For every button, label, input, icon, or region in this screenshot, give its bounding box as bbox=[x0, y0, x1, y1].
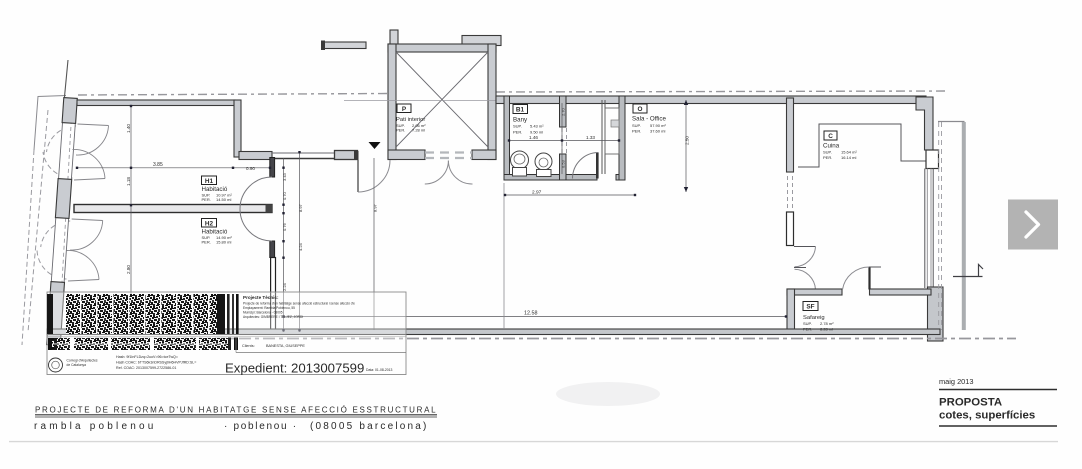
svg-text:H1: H1 bbox=[205, 178, 214, 185]
svg-text:SUP.: SUP. bbox=[803, 321, 812, 326]
svg-text:15.64 m²: 15.64 m² bbox=[841, 150, 857, 155]
svg-text:8.97: 8.97 bbox=[298, 203, 303, 212]
svg-text:2.78 m²: 2.78 m² bbox=[820, 321, 834, 326]
svg-text:maig 2013: maig 2013 bbox=[939, 377, 974, 386]
svg-text:SUP.: SUP. bbox=[513, 124, 522, 129]
svg-text:3.43: 3.43 bbox=[282, 172, 287, 181]
svg-text:37.60 ml: 37.60 ml bbox=[650, 129, 665, 134]
svg-text:Ref. COAC: 2013007599-2722586-: Ref. COAC: 2013007599-2722586-01 bbox=[116, 366, 176, 370]
svg-text:P: P bbox=[402, 106, 407, 113]
svg-text:SUP.: SUP. bbox=[632, 123, 641, 128]
svg-text:Data: 01-08-2013: Data: 01-08-2013 bbox=[366, 368, 393, 372]
svg-text:8.97: 8.97 bbox=[373, 203, 378, 212]
svg-text:SUP.: SUP. bbox=[823, 150, 832, 155]
svg-text:3.85: 3.85 bbox=[153, 162, 163, 168]
svg-text:1.40: 1.40 bbox=[126, 124, 131, 133]
svg-text:0.70: 0.70 bbox=[282, 191, 287, 200]
svg-text:Clients:: Clients: bbox=[242, 344, 255, 348]
svg-text:57.90 m²: 57.90 m² bbox=[650, 123, 666, 128]
svg-text:PER.: PER. bbox=[823, 155, 832, 160]
svg-text:PER.: PER. bbox=[396, 128, 405, 133]
svg-text:(08005 barcelona): (08005 barcelona) bbox=[310, 421, 429, 432]
svg-text:0.90: 0.90 bbox=[246, 166, 255, 171]
svg-text:rambla poblenou: rambla poblenou bbox=[34, 421, 157, 432]
svg-text:8.28 ml: 8.28 ml bbox=[820, 326, 833, 331]
svg-text:Bany: Bany bbox=[513, 117, 528, 124]
svg-text:2.97: 2.97 bbox=[532, 190, 542, 196]
svg-text:de Catalunya: de Catalunya bbox=[67, 363, 87, 367]
svg-text:C: C bbox=[828, 133, 833, 140]
svg-text:Projecte de reforma d'un habit: Projecte de reforma d'un habitatge sense… bbox=[243, 301, 355, 305]
svg-text:5.43 m²: 5.43 m² bbox=[530, 124, 544, 129]
svg-text:Arquitectes: GIMBRERE I TELJEZ: Arquitectes: GIMBRERE I TELJEZ, JORDI bbox=[243, 315, 303, 319]
svg-text:4.24: 4.24 bbox=[298, 242, 303, 251]
svg-text:0.76: 0.76 bbox=[282, 222, 287, 231]
svg-text:7.28 ml: 7.28 ml bbox=[412, 128, 425, 133]
svg-text:Municipi: Barcelona - 08005: Municipi: Barcelona - 08005 bbox=[243, 311, 283, 315]
svg-text:Col·legi d'Arquitectes: Col·legi d'Arquitectes bbox=[67, 359, 98, 363]
svg-text:PER.: PER. bbox=[202, 240, 211, 245]
svg-text:12.58: 12.58 bbox=[524, 311, 538, 317]
svg-text:Hash: 9f1InFLDzq=2uoV=96=tceTw: Hash: 9f1InFLDzq=2uoV=96=tceTwQ= bbox=[116, 355, 178, 359]
svg-text:BANESTA, GIUSEPPE: BANESTA, GIUSEPPE bbox=[266, 344, 305, 348]
svg-text:SF: SF bbox=[806, 304, 814, 311]
svg-text:2.70: 2.70 bbox=[561, 107, 566, 116]
svg-text:Sala - Office: Sala - Office bbox=[632, 116, 666, 123]
svg-text:O: O bbox=[638, 106, 643, 113]
svg-text:1.18: 1.18 bbox=[126, 177, 131, 186]
svg-text:PER.: PER. bbox=[803, 326, 812, 331]
svg-text:PER.: PER. bbox=[202, 197, 211, 202]
svg-text:1.46: 1.46 bbox=[529, 135, 538, 140]
svg-text:0.53: 0.53 bbox=[561, 159, 566, 168]
svg-text:PROPOSTA: PROPOSTA bbox=[939, 397, 1002, 409]
svg-text:14.50 ml: 14.50 ml bbox=[216, 197, 231, 202]
svg-text:cotes, superfícies: cotes, superfícies bbox=[939, 410, 1035, 422]
svg-text:· poblenou ·: · poblenou · bbox=[224, 421, 298, 432]
svg-text:1.33: 1.33 bbox=[586, 135, 595, 140]
svg-text:H2: H2 bbox=[205, 220, 214, 227]
svg-text:15.80 ml: 15.80 ml bbox=[216, 240, 231, 245]
svg-text:9.50 ml: 9.50 ml bbox=[530, 130, 543, 135]
svg-text:Hash COAC: bTTS6k3nDRSSyj0H6HV: Hash COAC: bTTS6k3nDRSSyj0H6HVPJfRD:SL= bbox=[116, 360, 196, 364]
svg-text:PROJECTE DE REFORMA D'UN HABIT: PROJECTE DE REFORMA D'UN HABITATGE SENSE… bbox=[35, 406, 437, 415]
svg-text:16.14 ml: 16.14 ml bbox=[841, 155, 856, 160]
svg-text:Cuina: Cuina bbox=[823, 143, 840, 150]
svg-text:Emplaçament: Rambla Poblenou,: Emplaçament: Rambla Poblenou, 55 bbox=[243, 306, 295, 310]
svg-text:PER.: PER. bbox=[513, 130, 522, 135]
svg-text:B1: B1 bbox=[516, 107, 525, 114]
svg-text:2.80: 2.80 bbox=[126, 265, 131, 274]
svg-text:2.50: 2.50 bbox=[685, 136, 690, 145]
svg-text:Projecte Tècnic:: Projecte Tècnic: bbox=[243, 295, 279, 300]
svg-text:PER.: PER. bbox=[632, 129, 641, 134]
svg-text:Expedient: 2013007599: Expedient: 2013007599 bbox=[225, 361, 364, 376]
svg-text:2.24: 2.24 bbox=[282, 282, 287, 291]
